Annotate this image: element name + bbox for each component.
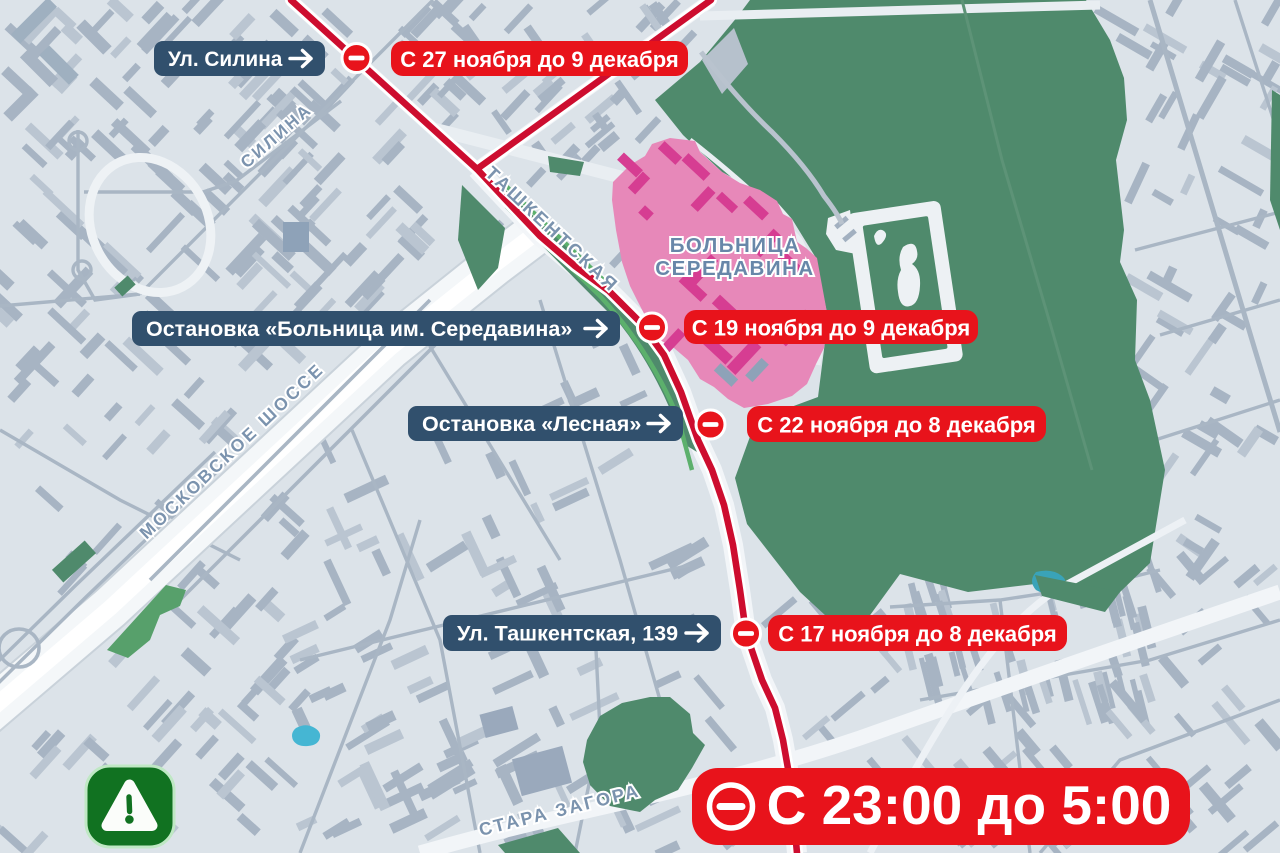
svg-text:Остановка «Больница им. Середа: Остановка «Больница им. Середавина» <box>146 317 572 341</box>
svg-text:С 19 ноября до 9 декабря: С 19 ноября до 9 декабря <box>692 316 970 341</box>
svg-text:Остановка «Лесная»: Остановка «Лесная» <box>422 412 641 436</box>
svg-text:С 17 ноября до 8 декабря: С 17 ноября до 8 декабря <box>778 622 1056 647</box>
svg-text:Ул. Силина: Ул. Силина <box>168 48 283 71</box>
svg-text:БОЛЬНИЦА: БОЛЬНИЦА <box>670 234 801 257</box>
svg-text:Ул. Ташкентская, 139: Ул. Ташкентская, 139 <box>457 622 678 646</box>
svg-text:СЕРЕДАВИНА: СЕРЕДАВИНА <box>655 257 814 280</box>
svg-text:С 23:00 до 5:00: С 23:00 до 5:00 <box>767 774 1172 836</box>
svg-text:С 27 ноября до 9 декабря: С 27 ноября до 9 декабря <box>400 47 678 72</box>
svg-text:С 22 ноября до 8 декабря: С 22 ноября до 8 декабря <box>757 413 1035 438</box>
